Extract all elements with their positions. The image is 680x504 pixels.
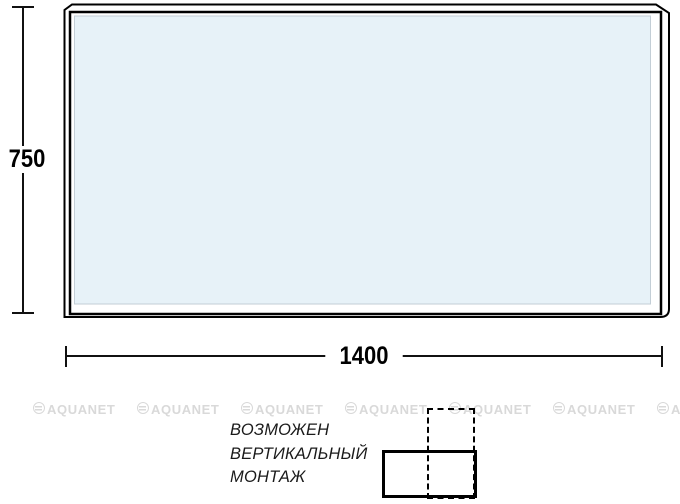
- watermark-text: AQUANET: [671, 402, 680, 417]
- watermark: AQUANET: [345, 402, 427, 419]
- aquanet-logo-icon: [241, 402, 253, 414]
- watermark-text: AQUANET: [47, 402, 115, 417]
- aquanet-logo-icon: [137, 402, 149, 414]
- watermark: AQUANET: [553, 402, 635, 419]
- watermark: AQUANET: [33, 402, 115, 419]
- vertical-mount-note: ВОЗМОЖЕН ВЕРТИКАЛЬНЫЙ МОНТАЖ: [230, 419, 368, 490]
- aquanet-logo-icon: [345, 402, 357, 414]
- dimension-tick-right: [661, 346, 663, 367]
- watermark: AQUANET: [657, 402, 680, 419]
- watermark-text: AQUANET: [567, 402, 635, 417]
- height-dimension-label: 750: [2, 146, 51, 173]
- aquanet-logo-icon: [553, 402, 565, 414]
- aquanet-logo-icon: [657, 402, 669, 414]
- note-line: ВЕРТИКАЛЬНЫЙ: [230, 443, 368, 467]
- mirror-dimension-drawing: 750 1400 AQUANET AQUANET AQUANET AQUANET…: [0, 0, 680, 504]
- watermark: AQUANET: [241, 402, 323, 419]
- aquanet-logo-icon: [33, 402, 45, 414]
- watermark-text: AQUANET: [151, 402, 219, 417]
- note-line: МОНТАЖ: [230, 466, 368, 490]
- mirror-vertical-dashed-rect-icon: [427, 408, 475, 499]
- watermark: AQUANET: [137, 402, 219, 419]
- width-dimension-label: 1400: [325, 343, 402, 370]
- note-line: ВОЗМОЖЕН: [230, 419, 368, 443]
- watermark-text: AQUANET: [359, 402, 427, 417]
- mirror-glass: [75, 16, 651, 304]
- watermark-text: AQUANET: [255, 402, 323, 417]
- dimension-tick-bottom: [12, 312, 34, 314]
